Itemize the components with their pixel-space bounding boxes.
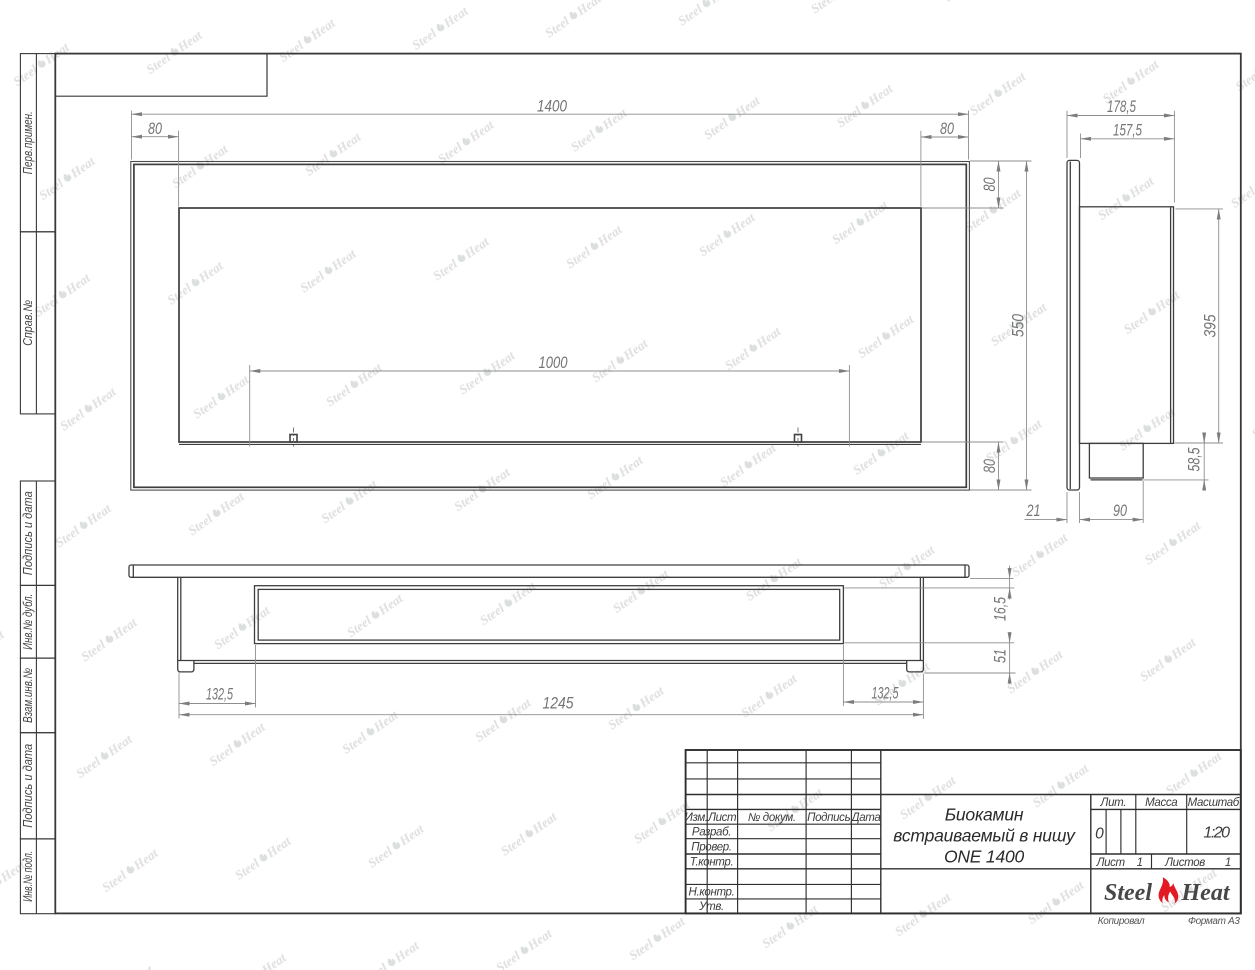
- svg-text:1400: 1400: [537, 97, 567, 116]
- svg-text:Лит.: Лит.: [1100, 797, 1127, 809]
- svg-text:Копировал: Копировал: [1098, 916, 1145, 927]
- svg-text:ONE 1400: ONE 1400: [944, 847, 1025, 867]
- svg-text:51: 51: [991, 649, 1010, 663]
- svg-text:1245: 1245: [543, 693, 574, 712]
- svg-text:Биокамин: Биокамин: [945, 805, 1024, 825]
- svg-text:21: 21: [1026, 501, 1041, 520]
- svg-text:Масштаб: Масштаб: [1188, 797, 1240, 809]
- svg-text:Утв.: Утв.: [698, 901, 724, 913]
- svg-text:80: 80: [148, 119, 162, 138]
- svg-text:Лист: Лист: [707, 812, 737, 824]
- svg-text:Формат А3: Формат А3: [1188, 916, 1240, 927]
- svg-text:1: 1: [1225, 857, 1231, 869]
- svg-text:Изм.: Изм.: [685, 812, 708, 824]
- svg-text:Подпись: Подпись: [807, 812, 850, 824]
- svg-text:0: 0: [1095, 826, 1104, 843]
- svg-text:1: 1: [1137, 857, 1143, 869]
- svg-text:1000: 1000: [539, 353, 568, 372]
- svg-text:№ докум.: № докум.: [748, 812, 796, 824]
- svg-text:550: 550: [1009, 314, 1028, 337]
- svg-text:Heat: Heat: [1181, 880, 1231, 906]
- svg-text:Steel: Steel: [1104, 880, 1152, 906]
- svg-text:80: 80: [940, 119, 954, 138]
- svg-text:Инв.№ дубл.: Инв.№ дубл.: [21, 594, 35, 650]
- svg-text:Подпись и дата: Подпись и дата: [21, 744, 35, 828]
- svg-text:Масса: Масса: [1145, 797, 1177, 809]
- svg-text:132,5: 132,5: [206, 684, 233, 703]
- svg-text:встраиваемый в нишу: встраиваемый в нишу: [893, 826, 1076, 846]
- svg-text:Т.контр.: Т.контр.: [690, 856, 734, 868]
- svg-text:395: 395: [1201, 314, 1220, 337]
- svg-text:Провер.: Провер.: [691, 841, 731, 853]
- svg-text:Разраб.: Разраб.: [692, 826, 731, 838]
- svg-text:80: 80: [980, 459, 999, 473]
- svg-text:90: 90: [1113, 501, 1127, 520]
- svg-text:16,5: 16,5: [991, 597, 1010, 621]
- svg-text:157,5: 157,5: [1113, 120, 1142, 139]
- svg-text:178,5: 178,5: [1107, 97, 1136, 116]
- svg-text:Дата: Дата: [850, 812, 881, 824]
- svg-text:1:20: 1:20: [1203, 825, 1230, 842]
- svg-text:Листов: Листов: [1164, 857, 1205, 869]
- svg-text:Подпись и дата: Подпись и дата: [21, 491, 35, 575]
- svg-text:Н.контр.: Н.контр.: [689, 887, 735, 899]
- svg-text:Инв.№ подл.: Инв.№ подл.: [21, 851, 35, 902]
- svg-text:58,5: 58,5: [1185, 447, 1204, 471]
- svg-text:132,5: 132,5: [872, 683, 899, 702]
- svg-text:80: 80: [980, 177, 999, 191]
- svg-text:Взам.инв.№: Взам.инв.№: [21, 668, 35, 723]
- svg-text:Лист: Лист: [1096, 857, 1126, 869]
- svg-text:Перв.примен.: Перв.примен.: [21, 111, 35, 174]
- svg-text:Справ.№: Справ.№: [21, 300, 35, 346]
